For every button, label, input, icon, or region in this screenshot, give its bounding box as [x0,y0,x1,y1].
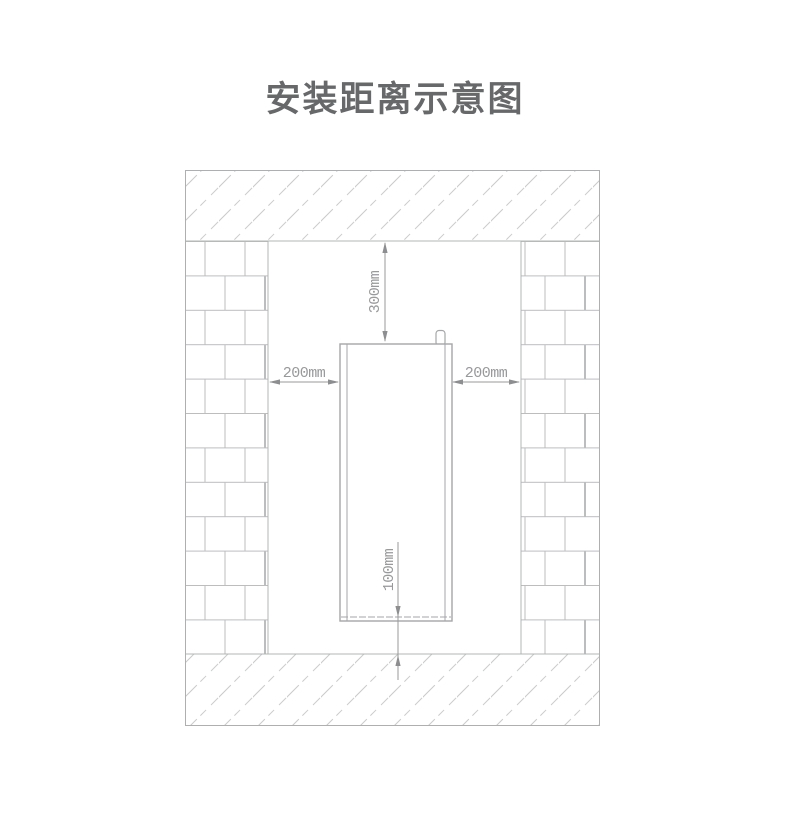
dim-right-label: 200mm [465,365,508,382]
floor-slab-hatch [186,654,600,726]
appliance-pipe-stub [436,331,445,346]
dim-top-label: 300mm [367,270,384,313]
dim-bottom-label: 100mm [381,548,398,591]
dim-left-label: 200mm [283,365,326,382]
dim-right-clearance: 200mm [452,365,520,385]
ceiling-slab-hatch [186,171,600,242]
installation-distance-diagram: 300mm 200mm 200mm 100mm [185,170,600,726]
left-wall-bricks [186,241,269,654]
page: 安装距离示意图 [0,0,790,836]
page-title: 安装距离示意图 [0,80,790,120]
right-wall-bricks [521,241,600,654]
dim-left-clearance: 200mm [269,365,339,385]
dim-top-clearance: 300mm [367,242,388,342]
